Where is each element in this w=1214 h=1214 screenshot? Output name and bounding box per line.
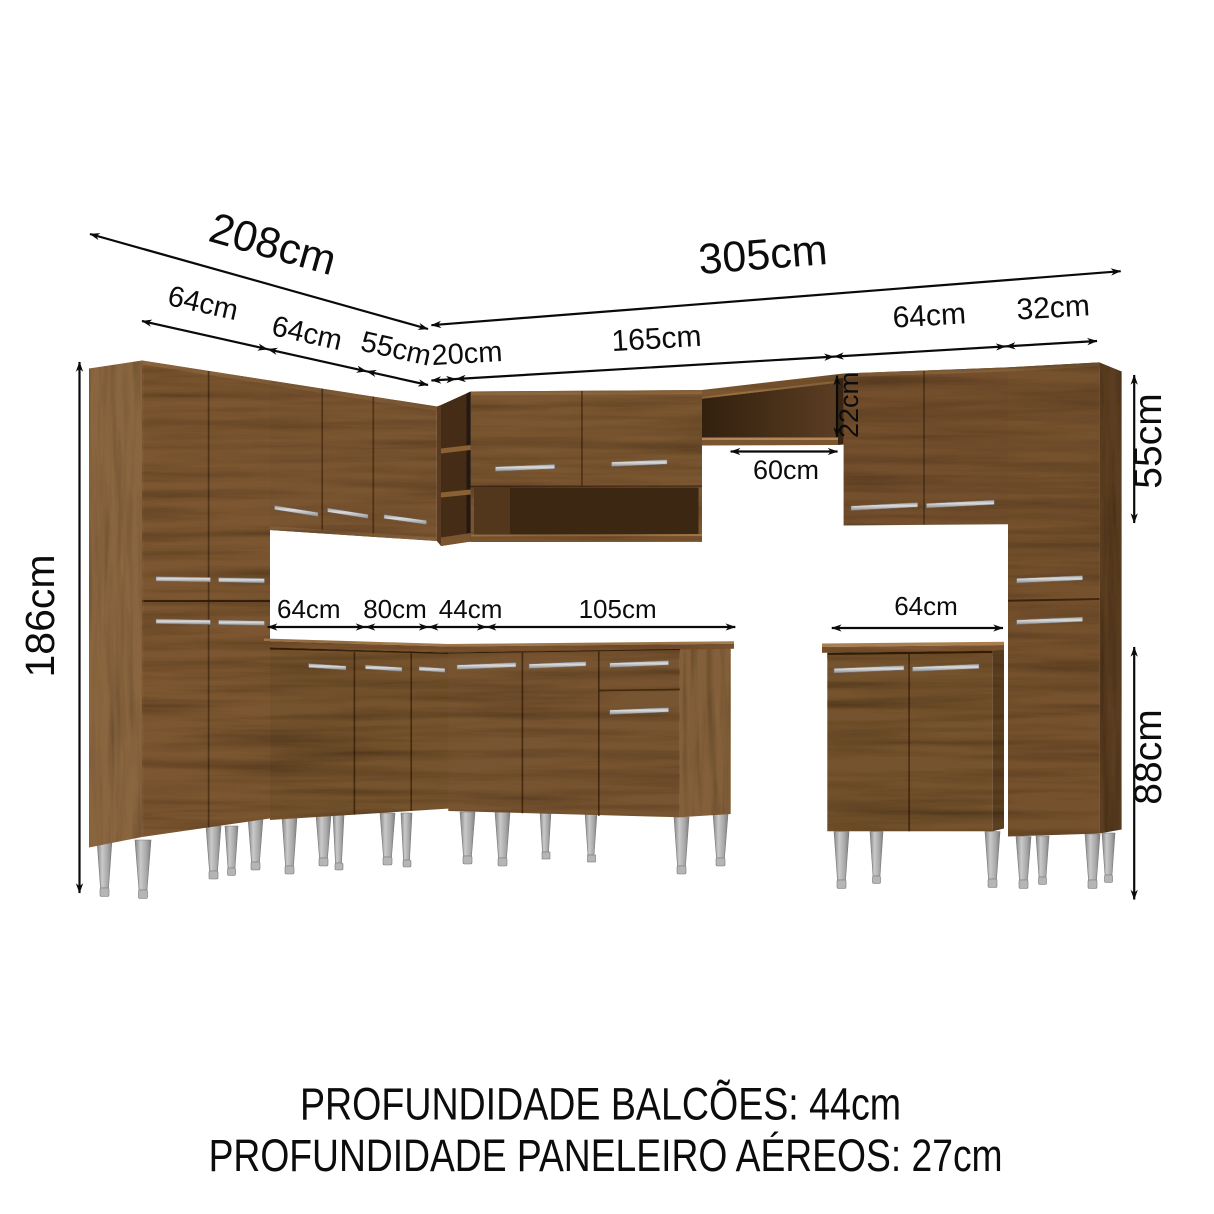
svg-text:PROFUNDIDADE BALCÕES: 44cm: PROFUNDIDADE BALCÕES: 44cm (300, 1079, 901, 1130)
svg-text:32cm: 32cm (1016, 289, 1091, 326)
svg-text:80cm: 80cm (363, 594, 427, 624)
svg-text:88cm: 88cm (1127, 709, 1170, 804)
svg-text:105cm: 105cm (579, 594, 657, 624)
svg-text:64cm: 64cm (277, 594, 341, 624)
svg-text:64cm: 64cm (892, 297, 967, 334)
svg-text:55cm: 55cm (1127, 393, 1170, 488)
svg-text:20cm: 20cm (431, 336, 504, 372)
svg-text:44cm: 44cm (439, 594, 503, 624)
svg-text:305cm: 305cm (697, 226, 829, 284)
svg-text:186cm: 186cm (17, 554, 63, 677)
svg-text:60cm: 60cm (753, 455, 819, 485)
svg-text:165cm: 165cm (611, 320, 703, 358)
svg-text:22cm: 22cm (834, 372, 864, 438)
svg-text:64cm: 64cm (894, 591, 958, 621)
svg-text:PROFUNDIDADE PANELEIRO AÉREOS:: PROFUNDIDADE PANELEIRO AÉREOS: 27cm (209, 1130, 1003, 1181)
